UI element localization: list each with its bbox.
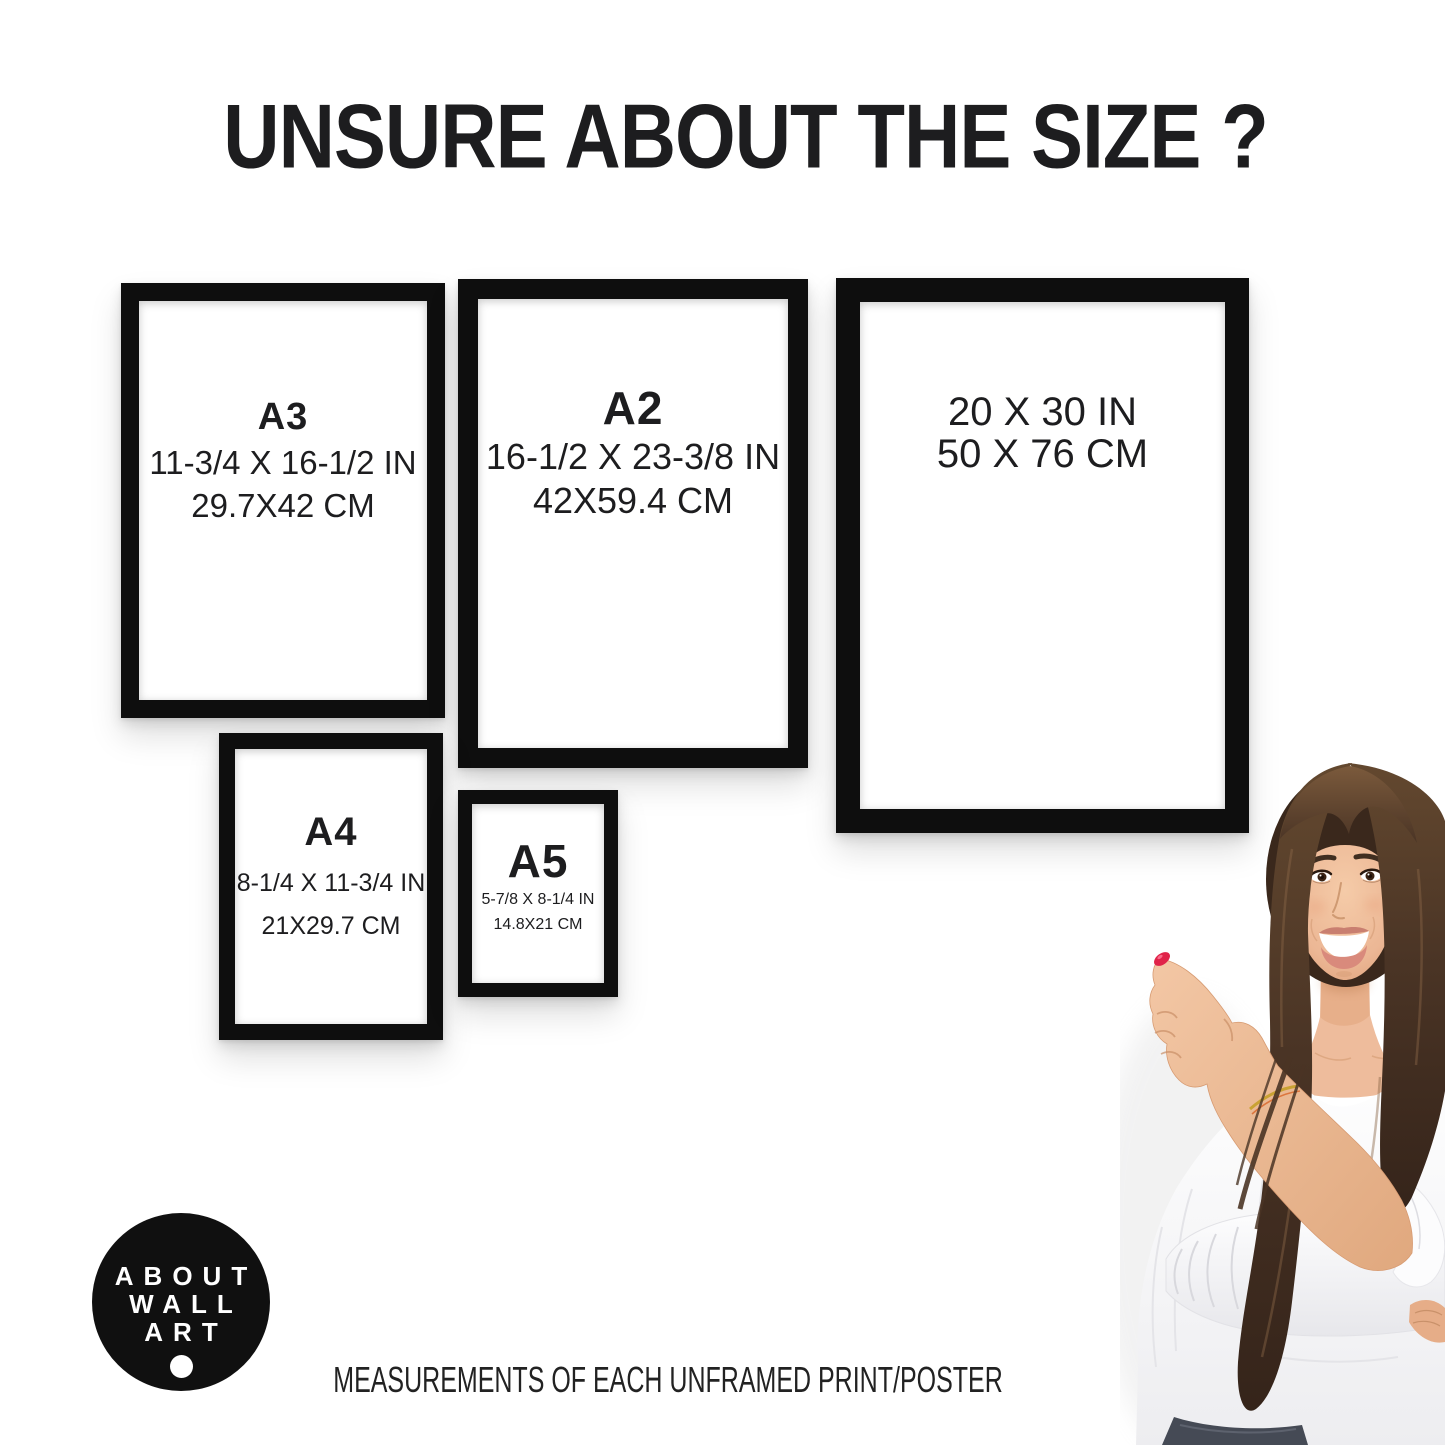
woman-photo	[1120, 757, 1445, 1445]
frame-a2: A2 16-1/2 X 23-3/8 IN 42X59.4 CM	[458, 279, 808, 768]
frame-a4-text: A4 8-1/4 X 11-3/4 IN 21X29.7 CM	[235, 812, 427, 947]
frame-a3-matte: A3 11-3/4 X 16-1/2 IN 29.7X42 CM	[139, 301, 427, 700]
frame-20x30-text: 20 X 30 IN 50 X 76 CM	[860, 391, 1225, 475]
frame-size-inches: 11-3/4 X 16-1/2 IN	[139, 442, 427, 484]
frame-label: A3	[139, 398, 427, 436]
frame-20x30-matte: 20 X 30 IN 50 X 76 CM	[860, 302, 1225, 809]
logo-line: WALL	[92, 1290, 270, 1318]
frame-label: A4	[235, 812, 427, 852]
frame-size-cm: 21X29.7 CM	[235, 905, 427, 948]
frame-a5-text: A5 5-7/8 X 8-1/4 IN 14.8X21 CM	[472, 838, 604, 938]
frame-size-inches: 8-1/4 X 11-3/4 IN	[235, 862, 427, 905]
frame-a4-matte: A4 8-1/4 X 11-3/4 IN 21X29.7 CM	[235, 749, 427, 1024]
frame-label: A5	[472, 838, 604, 884]
frame-a4: A4 8-1/4 X 11-3/4 IN 21X29.7 CM	[219, 733, 443, 1040]
frame-size-cm: 42X59.4 CM	[478, 479, 788, 522]
frame-label: A2	[478, 385, 788, 431]
frame-size-inches: 5-7/8 X 8-1/4 IN	[472, 888, 604, 913]
logo-line: ABOUT	[92, 1262, 270, 1290]
frame-size-cm: 29.7X42 CM	[139, 485, 427, 527]
footer-caption-text: MEASUREMENTS OF EACH UNFRAMED PRINT/POST…	[333, 1363, 1003, 1399]
logo-line: ART	[92, 1318, 270, 1346]
frame-a3-text: A3 11-3/4 X 16-1/2 IN 29.7X42 CM	[139, 398, 427, 526]
frame-a2-text: A2 16-1/2 X 23-3/8 IN 42X59.4 CM	[478, 385, 788, 521]
frame-a5: A5 5-7/8 X 8-1/4 IN 14.8X21 CM	[458, 790, 618, 997]
frame-size-inches: 20 X 30 IN	[860, 391, 1225, 433]
page-title: UNSURE ABOUT THE SIZE ?	[0, 84, 1445, 175]
frame-size-cm: 14.8X21 CM	[472, 913, 604, 938]
frame-20x30: 20 X 30 IN 50 X 76 CM	[836, 278, 1249, 833]
frame-size-inches: 16-1/2 X 23-3/8 IN	[478, 435, 788, 478]
frame-a5-matte: A5 5-7/8 X 8-1/4 IN 14.8X21 CM	[472, 804, 604, 983]
frame-a2-matte: A2 16-1/2 X 23-3/8 IN 42X59.4 CM	[478, 299, 788, 748]
page-title-text: UNSURE ABOUT THE SIZE ?	[223, 84, 1267, 190]
frame-size-cm: 50 X 76 CM	[860, 433, 1225, 475]
frame-a3: A3 11-3/4 X 16-1/2 IN 29.7X42 CM	[121, 283, 445, 718]
size-guide-page: UNSURE ABOUT THE SIZE ? A3 11-3/4 X 16-1…	[0, 0, 1445, 1445]
